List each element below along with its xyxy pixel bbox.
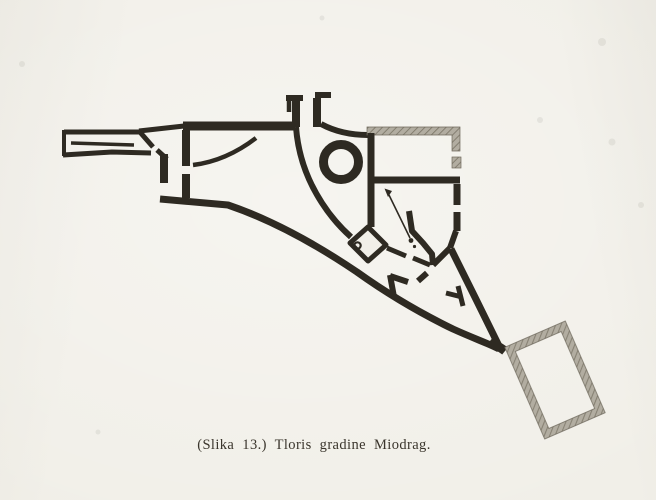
southeast-tower [505, 321, 605, 439]
courtyard-junction-walls [387, 248, 500, 348]
paper-noise [19, 16, 644, 435]
gate-to-tower-wall [321, 124, 368, 135]
scanned-book-page: (Slika 13.) Tloris gradine Miodrag. [0, 0, 656, 500]
figure-caption: (Slika 13.) Tloris gradine Miodrag. [0, 437, 628, 454]
cross-mark [446, 286, 463, 306]
floor-plan-figure [0, 0, 656, 500]
round-tower [324, 145, 359, 180]
cistern-room [350, 227, 386, 261]
main-gate [286, 95, 331, 127]
south-rampart [160, 199, 499, 349]
west-door-piers [164, 130, 186, 198]
terrace-arc [193, 138, 256, 165]
